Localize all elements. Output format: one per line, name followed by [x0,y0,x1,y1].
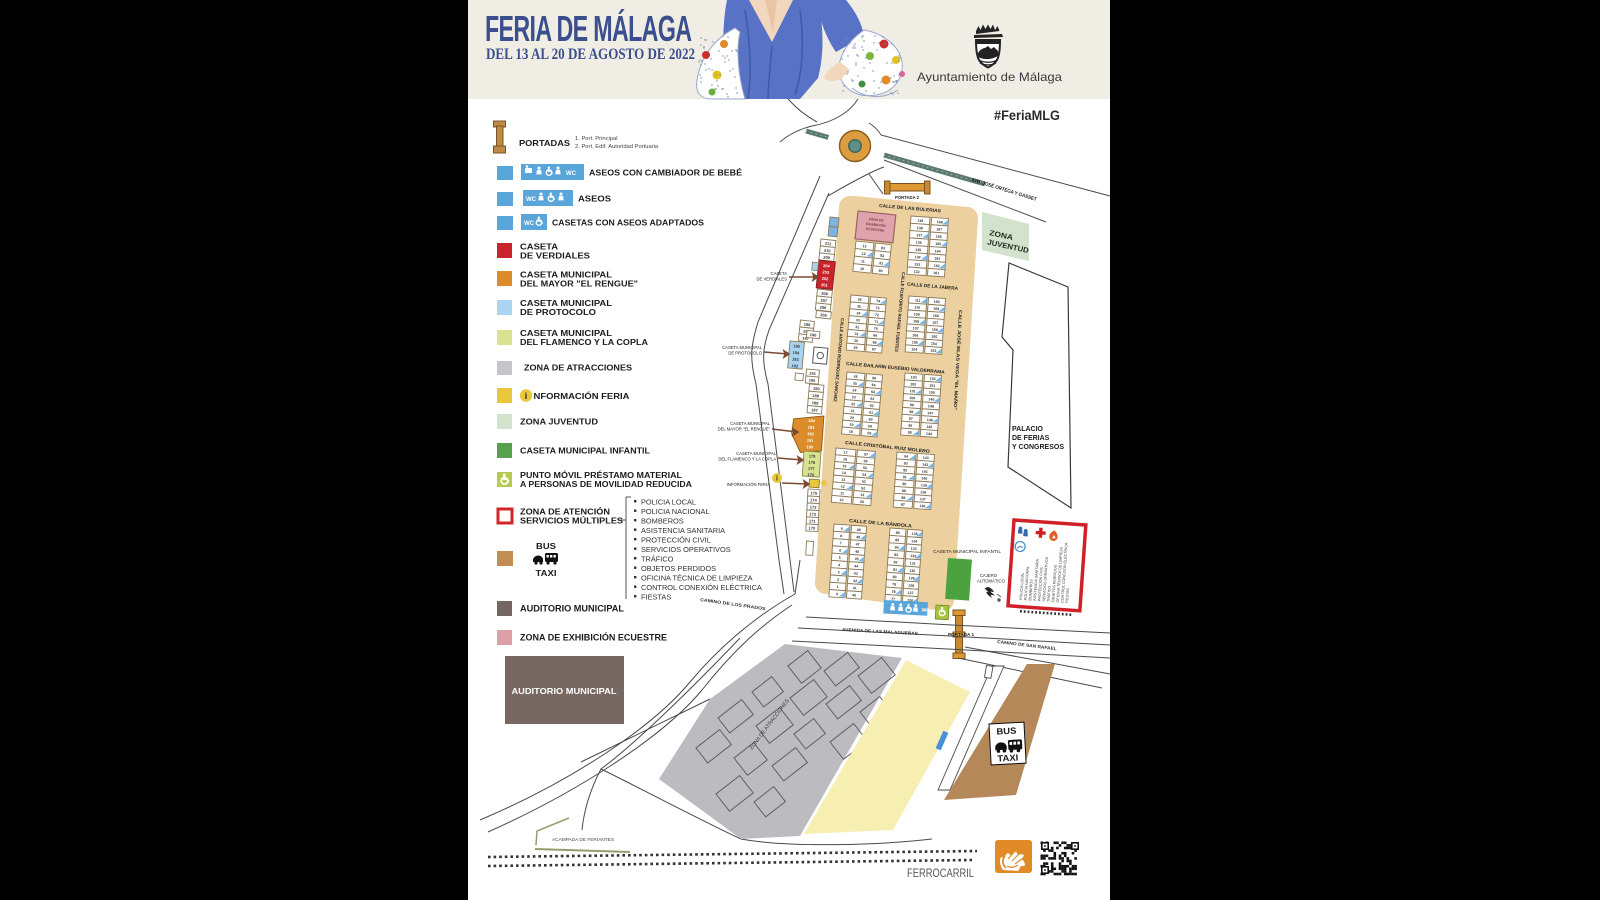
svg-text:82: 82 [893,560,897,564]
svg-text:99: 99 [910,403,914,407]
svg-text:TAXI: TAXI [536,568,557,578]
svg-text:67: 67 [872,347,876,351]
svg-text:193: 193 [792,356,800,362]
svg-text:60: 60 [868,417,872,421]
svg-text:145: 145 [926,425,932,429]
svg-text:10: 10 [839,498,843,502]
svg-text:WC: WC [921,607,930,613]
svg-text:DE VERDIALES: DE VERDIALES [757,277,788,282]
svg-text:AUDITORIO MUNICIPAL: AUDITORIO MUNICIPAL [520,604,625,614]
svg-text:36: 36 [857,298,861,302]
svg-text:29: 29 [853,346,857,350]
svg-text:96: 96 [908,424,912,428]
svg-text:80: 80 [878,269,882,273]
svg-text:NFORMACIÓN FERIA: NFORMACIÓN FERIA [534,390,630,401]
svg-text:CASETA MUNICIPAL: CASETA MUNICIPAL [736,451,777,456]
svg-text:159: 159 [933,307,939,311]
svg-text:TRÁFICO: TRÁFICO [641,555,674,564]
svg-text:A PERSONAS DE MOVILIDAD REDUCI: A PERSONAS DE MOVILIDAD REDUCIDA [520,479,692,489]
svg-text:58: 58 [867,431,871,435]
svg-text:52: 52 [861,486,865,490]
svg-text:CASETAS CON ASEOS ADAPTADOS: CASETAS CON ASEOS ADAPTADOS [552,218,704,228]
svg-text:103: 103 [911,375,917,379]
svg-text:93: 93 [904,461,908,465]
svg-text:105: 105 [912,340,918,344]
svg-text:156: 156 [932,328,938,332]
svg-text:62: 62 [870,404,874,408]
svg-text:176: 176 [807,472,815,478]
svg-text:PORTADAS: PORTADAS [519,138,570,148]
svg-text:147: 147 [927,411,933,415]
svg-text:160: 160 [934,300,940,304]
svg-text:23: 23 [852,395,856,399]
svg-text:111: 111 [915,298,921,302]
svg-text:139: 139 [921,483,927,487]
svg-text:134: 134 [911,539,917,543]
svg-text:12: 12 [861,252,865,256]
svg-text:61: 61 [869,411,873,415]
svg-text:165: 165 [935,242,941,246]
svg-text:56: 56 [863,459,867,463]
svg-text:177: 177 [808,466,816,472]
svg-text:6: 6 [839,549,841,553]
svg-text:Ayuntamiento de Málaga: Ayuntamiento de Málaga [917,70,1062,84]
svg-text:8: 8 [840,534,842,538]
svg-text:86: 86 [896,531,900,535]
svg-text:70: 70 [874,327,878,331]
svg-text:92: 92 [903,468,907,472]
svg-text:DEL MAYOR "EL RENGUE": DEL MAYOR "EL RENGUE" [718,427,771,432]
svg-text:133: 133 [914,262,920,266]
svg-text:74: 74 [876,299,880,303]
svg-text:43: 43 [854,572,858,576]
svg-text:85: 85 [895,538,899,542]
svg-text:CAMINO DE SAN RAFAEL: CAMINO DE SAN RAFAEL [997,639,1057,651]
svg-text:1. Port. Principal: 1. Port. Principal [575,136,618,142]
svg-text:178: 178 [808,460,816,466]
svg-text:131: 131 [910,561,916,565]
svg-text:101: 101 [910,389,916,393]
svg-text:182: 182 [807,431,815,437]
svg-text:DEL 13 AL 20 DE AGOSTO DE 2022: DEL 13 AL 20 DE AGOSTO DE 2022 [486,46,695,63]
svg-text:110: 110 [914,305,920,309]
svg-text:CASETA MUNICIPAL INFANTIL: CASETA MUNICIPAL INFANTIL [933,549,1002,554]
svg-text:DEL FLAMENCO Y LA COPLA: DEL FLAMENCO Y LA COPLA [520,337,648,347]
svg-text:AVENIDA DE LAS MALAGUEÑAS: AVENIDA DE LAS MALAGUEÑAS [842,627,918,636]
svg-text:CASETA: CASETA [771,271,788,276]
svg-text:33: 33 [856,318,860,322]
svg-text:144: 144 [926,432,932,436]
svg-text:44: 44 [854,564,858,568]
svg-text:20: 20 [850,416,854,420]
svg-text:45: 45 [855,557,859,561]
svg-text:1: 1 [836,585,838,589]
svg-text:0: 0 [836,592,838,596]
svg-text:DEL MAYOR "EL RENGUE": DEL MAYOR "EL RENGUE" [520,279,638,289]
svg-text:54: 54 [862,473,866,477]
svg-text:109: 109 [914,312,920,316]
svg-text:157: 157 [932,321,938,325]
svg-text:10: 10 [860,267,864,271]
svg-text:12: 12 [840,484,844,488]
svg-text:150: 150 [929,390,935,394]
svg-text:134: 134 [915,255,921,259]
svg-text:133: 133 [911,547,917,551]
svg-text:141: 141 [922,470,928,474]
svg-text:PROTECCIÓN CIVIL: PROTECCIÓN CIVIL [641,536,711,545]
svg-text:TAXI: TAXI [997,753,1018,764]
svg-text:180: 180 [806,444,814,450]
svg-text:14: 14 [842,471,846,475]
svg-text:22: 22 [851,402,855,406]
svg-text:35: 35 [857,304,861,308]
svg-text:ASISTENCIA SANITARIA: ASISTENCIA SANITARIA [641,526,725,535]
svg-text:190: 190 [813,386,821,392]
svg-text:47: 47 [856,542,860,546]
svg-text:ZONA JUVENTUD: ZONA JUVENTUD [520,417,598,427]
svg-text:168: 168 [937,220,943,224]
svg-text:13: 13 [862,244,866,248]
svg-text:80: 80 [892,575,896,579]
svg-text:162: 162 [934,264,940,268]
svg-text:146: 146 [927,418,933,422]
svg-text:24: 24 [852,388,856,392]
svg-text:2. Port. Edif. Autoridad Portu: 2. Port. Edif. Autoridad Portuaria [575,144,659,150]
svg-text:15: 15 [842,464,846,468]
svg-text:174: 174 [810,497,818,502]
svg-text:65: 65 [871,383,875,387]
svg-text:ASEOS CON CAMBIADOR DE BEBÉ: ASEOS CON CAMBIADOR DE BEBÉ [589,168,742,178]
svg-text:OBJETOS PERDIDOS: OBJETOS PERDIDOS [641,564,716,573]
svg-text:89: 89 [902,489,906,493]
svg-text:155: 155 [931,335,937,339]
svg-text:AUDITORIO MUNICIPAL: AUDITORIO MUNICIPAL [512,686,617,696]
svg-text:138: 138 [917,226,923,230]
svg-text:172: 172 [809,511,817,516]
svg-text:53: 53 [862,479,866,483]
svg-text:142: 142 [922,463,928,467]
svg-text:173: 173 [810,504,818,509]
svg-text:81: 81 [893,568,897,572]
svg-text:CASETA MUNICIPAL: CASETA MUNICIPAL [722,345,763,350]
svg-text:184: 184 [808,418,816,424]
svg-text:41: 41 [853,586,857,590]
svg-text:21: 21 [850,409,854,413]
svg-text:ZONA DE ATRACCIONES: ZONA DE ATRACCIONES [524,363,632,373]
svg-text:55: 55 [863,466,867,470]
svg-text:64: 64 [871,390,875,394]
svg-text:191: 191 [809,371,817,377]
svg-text:DE PROTOCOLO: DE PROTOCOLO [520,307,596,317]
svg-text:ASEOS: ASEOS [578,194,611,204]
svg-text:i: i [525,391,528,402]
svg-text:196: 196 [810,332,818,338]
svg-text:CASETA MUNICIPAL: CASETA MUNICIPAL [730,421,771,426]
svg-text:152: 152 [930,377,936,381]
svg-text:42: 42 [853,579,857,583]
svg-text:7: 7 [840,541,842,545]
svg-text:Y CONGRESOS: Y CONGRESOS [1012,444,1064,451]
svg-text:128: 128 [908,584,914,588]
svg-text:4: 4 [838,563,840,567]
svg-text:81: 81 [879,261,883,265]
svg-text:163: 163 [934,256,940,260]
svg-text:137: 137 [916,233,922,237]
svg-text:31: 31 [854,332,858,336]
svg-text:161: 161 [933,271,939,275]
svg-text:BOMBEROS: BOMBEROS [641,517,684,526]
svg-text:51: 51 [860,493,864,497]
svg-text:50: 50 [860,500,864,504]
svg-text:AVD. JOSÉ ORTEGA Y GASSET: AVD. JOSÉ ORTEGA Y GASSET [970,175,1037,203]
svg-text:DE PROTOCOLO: DE PROTOCOLO [728,351,762,356]
svg-text:PALACIO: PALACIO [1012,426,1044,433]
svg-text:137: 137 [920,497,926,501]
svg-text:187: 187 [811,407,819,413]
svg-text:82: 82 [880,254,884,258]
svg-text:104: 104 [911,347,917,351]
svg-text:SERVICIOS MÚLTIPLES: SERVICIOS MÚLTIPLES [520,515,623,526]
svg-text:138: 138 [920,490,926,494]
svg-text:71: 71 [874,320,878,324]
svg-text:DE VERDIALES: DE VERDIALES [520,251,590,261]
svg-text:OFICINA TÉCNICA DE LIMPIEZA: OFICINA TÉCNICA DE LIMPIEZA [641,574,753,583]
svg-text:19: 19 [849,423,853,427]
svg-text:167: 167 [936,227,942,231]
svg-text:175: 175 [810,490,818,495]
svg-text:127: 127 [907,591,913,595]
svg-text:102: 102 [910,382,916,386]
svg-text:170: 170 [808,525,816,530]
svg-text:30: 30 [854,339,858,343]
svg-text:149: 149 [928,397,934,401]
svg-text:CAMINO DE LOS PRADOS: CAMINO DE LOS PRADOS [700,597,766,611]
svg-text:154: 154 [931,342,937,346]
svg-text:59: 59 [868,424,872,428]
svg-text:POLICIA LOCAL: POLICIA LOCAL [641,498,696,507]
svg-text:91: 91 [903,475,907,479]
svg-text:POLICIA NACIONAL: POLICIA NACIONAL [641,507,710,516]
svg-text:FERROCARRIL: FERROCARRIL [907,868,974,880]
svg-text:CASETA MUNICIPAL INFANTIL: CASETA MUNICIPAL INFANTIL [520,446,650,456]
svg-text:AUTOMÁTICO: AUTOMÁTICO [977,579,1006,584]
svg-text:179: 179 [809,453,817,459]
svg-text:158: 158 [933,314,939,318]
svg-text:40: 40 [852,593,856,597]
svg-text:FERIA DE MÁLAGA: FERIA DE MÁLAGA [485,9,692,50]
svg-text:135: 135 [915,248,921,252]
svg-text:78: 78 [891,590,895,594]
svg-text:107: 107 [913,326,919,330]
svg-text:48: 48 [856,535,860,539]
svg-text:194: 194 [792,350,800,356]
svg-text:153: 153 [930,349,936,353]
svg-text:139: 139 [917,219,923,223]
svg-text:140: 140 [921,476,927,480]
svg-text:CAJERO: CAJERO [980,573,998,578]
svg-text:2: 2 [837,578,839,582]
svg-text:171: 171 [809,518,817,523]
svg-text:DEL FLAMENCO Y LA COPLA: DEL FLAMENCO Y LA COPLA [718,457,776,462]
svg-text:84: 84 [895,546,899,550]
svg-text:26: 26 [853,375,857,379]
svg-text:57: 57 [864,452,868,456]
svg-text:181: 181 [807,438,815,444]
svg-text:11: 11 [861,259,865,263]
svg-text:97: 97 [909,417,913,421]
svg-text:136: 136 [916,241,922,245]
svg-text:87: 87 [901,503,905,507]
svg-text:#FeriaMLG: #FeriaMLG [994,108,1060,123]
svg-text:ACAMPADA DE FERIANTES: ACAMPADA DE FERIANTES [552,837,614,842]
svg-text:49: 49 [857,528,861,532]
svg-text:WC: WC [566,171,577,177]
svg-text:189: 189 [812,393,820,399]
svg-text:195: 195 [793,343,801,349]
svg-text:WC: WC [526,197,537,203]
svg-text:WC: WC [524,221,535,227]
svg-text:106: 106 [912,333,918,337]
svg-text:88: 88 [901,496,905,500]
svg-text:136: 136 [919,504,925,508]
svg-text:95: 95 [908,431,912,435]
svg-text:98: 98 [909,410,913,414]
svg-text:18: 18 [849,430,853,434]
svg-text:13: 13 [841,478,845,482]
svg-text:17: 17 [843,451,847,455]
svg-text:63: 63 [870,397,874,401]
svg-text:73: 73 [875,306,879,310]
svg-text:166: 166 [936,235,942,239]
svg-text:ZONA DE EXHIBICIÓN ECUESTRE: ZONA DE EXHIBICIÓN ECUESTRE [520,632,667,643]
svg-text:16: 16 [843,457,847,461]
svg-text:143: 143 [923,456,929,460]
svg-text:34: 34 [856,311,860,315]
svg-text:83: 83 [881,246,885,250]
svg-text:25: 25 [853,381,857,385]
svg-text:FIESTAS: FIESTAS [641,593,671,602]
svg-text:i: i [776,476,778,483]
svg-text:188: 188 [812,400,820,406]
svg-text:32: 32 [855,325,859,329]
svg-text:183: 183 [808,424,816,430]
svg-text:5: 5 [839,556,841,560]
svg-text:72: 72 [875,313,879,317]
svg-text:9: 9 [841,527,843,531]
svg-text:BUS: BUS [996,726,1016,737]
svg-text:130: 130 [909,569,915,573]
svg-text:66: 66 [872,376,876,380]
svg-text:94: 94 [904,454,908,458]
svg-text:11: 11 [840,491,844,495]
svg-text:PORTADA 2: PORTADA 2 [895,195,920,200]
svg-text:69: 69 [873,334,877,338]
svg-text:190: 190 [808,377,816,383]
svg-text:BUS: BUS [536,541,556,551]
svg-text:90: 90 [902,482,906,486]
svg-text:INFORMACIÓN FERIA: INFORMACIÓN FERIA [727,482,770,487]
svg-text:108: 108 [913,319,919,323]
svg-text:SERVICIOS OPERATIVOS: SERVICIOS OPERATIVOS [641,545,731,554]
svg-text:192: 192 [791,363,799,369]
svg-text:100: 100 [909,396,915,400]
svg-text:151: 151 [929,384,935,388]
svg-text:68: 68 [872,340,876,344]
svg-text:CONTROL CONEXIÓN ELÉCTRICA: CONTROL CONEXIÓN ELÉCTRICA [641,583,762,592]
svg-text:46: 46 [855,550,859,554]
svg-text:79: 79 [892,582,896,586]
svg-text:148: 148 [928,404,934,408]
svg-text:83: 83 [894,553,898,557]
svg-text:164: 164 [935,249,941,253]
svg-text:132: 132 [913,270,919,274]
svg-text:3: 3 [837,570,839,574]
svg-text:DE FERIAS: DE FERIAS [1012,435,1050,442]
